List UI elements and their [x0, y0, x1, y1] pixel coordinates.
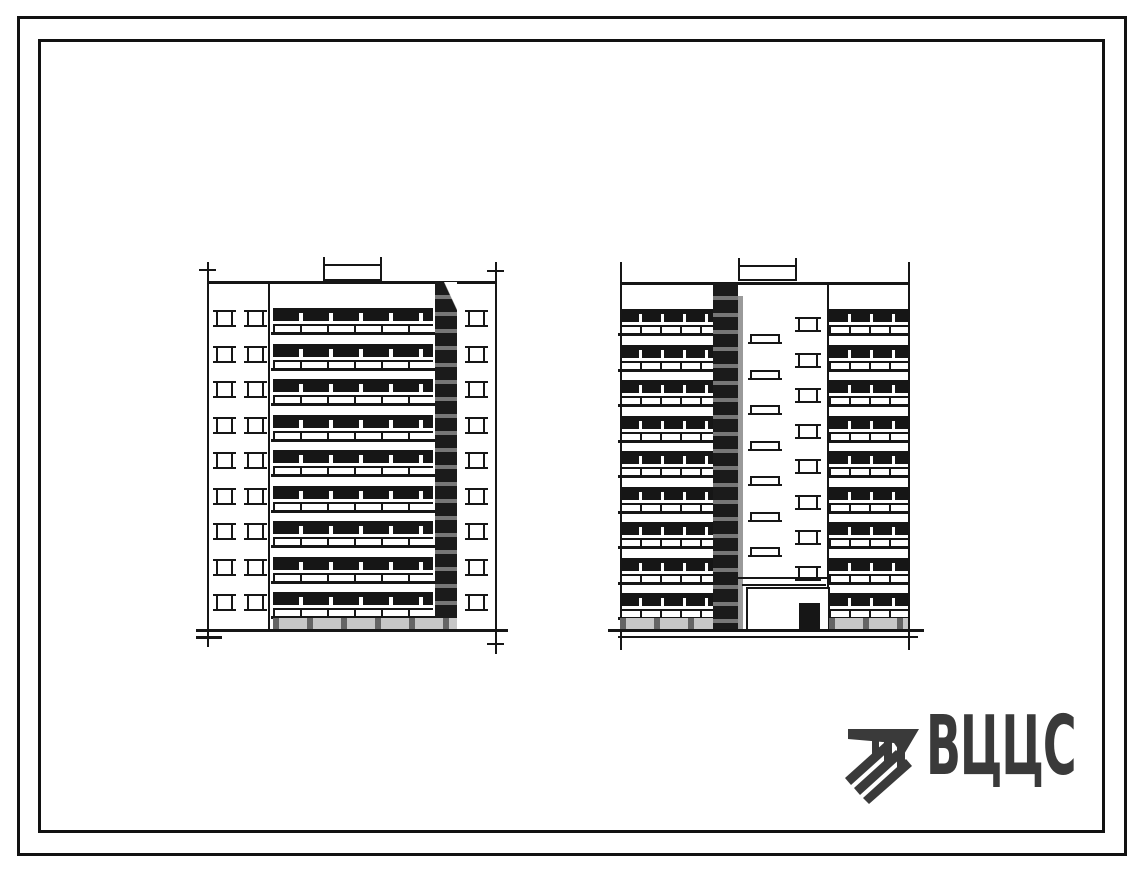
balcony-glazing — [829, 558, 908, 571]
balcony-glazing — [829, 451, 908, 464]
entrance-porch — [746, 587, 830, 632]
balcony-slab-line — [618, 546, 715, 549]
balcony-band — [829, 309, 908, 336]
stair-landing-window — [750, 476, 780, 486]
stair-landing-window — [750, 547, 780, 557]
balcony-glazing — [273, 379, 433, 392]
stair-landing-window — [750, 370, 780, 380]
balcony-slab-line — [271, 474, 435, 477]
balcony-slab-line — [271, 439, 435, 442]
elevator-penthouse — [738, 265, 797, 281]
stairwell-glazing-strip — [435, 282, 457, 630]
balcony-band — [620, 522, 713, 549]
window — [468, 417, 485, 434]
stairwell-glazing-strip — [713, 283, 738, 630]
logo-wordmark: ВЦЦС — [926, 706, 1075, 788]
ground-line-stub — [196, 636, 222, 639]
window — [247, 417, 264, 434]
basement-strip — [829, 618, 908, 629]
balcony-glazing — [273, 344, 433, 357]
balcony-glazing — [620, 380, 713, 393]
balcony-band — [273, 521, 433, 548]
balcony-band — [829, 593, 908, 620]
balcony-slab-line — [271, 545, 435, 548]
balcony-band — [273, 415, 433, 442]
window — [247, 488, 264, 505]
balcony-slab-line — [271, 368, 435, 371]
window — [468, 310, 485, 327]
sheet: ВЦЦС — [0, 0, 1139, 869]
entrance-door — [799, 603, 820, 630]
balcony-slab-line — [827, 582, 910, 585]
balcony-glazing — [620, 558, 713, 571]
window — [468, 559, 485, 576]
window — [216, 417, 233, 434]
window — [247, 346, 264, 363]
stair-landing-window — [750, 334, 780, 344]
stair-landing-window — [750, 441, 780, 451]
balcony-band — [829, 558, 908, 585]
balcony-stack — [620, 309, 713, 629]
balcony-glazing — [829, 487, 908, 500]
balcony-glazing — [829, 309, 908, 322]
balcony-glazing — [273, 450, 433, 463]
window — [468, 346, 485, 363]
balcony-glazing — [620, 416, 713, 429]
roof-parapet-line — [620, 282, 910, 285]
balcony-band — [273, 344, 433, 371]
facade-edge-line — [908, 262, 910, 650]
window — [216, 523, 233, 540]
balcony-band — [273, 450, 433, 477]
balcony-band — [273, 486, 433, 513]
window — [247, 310, 264, 327]
balcony-glazing — [273, 557, 433, 570]
entrance-canopy — [738, 577, 830, 579]
balcony-glazing — [620, 345, 713, 358]
ground-line — [196, 629, 508, 632]
balcony-band — [620, 380, 713, 407]
balcony-glazing — [620, 487, 713, 500]
balcony-slab-line — [618, 333, 715, 336]
balcony-slab-line — [827, 511, 910, 514]
balcony-glazing — [273, 592, 433, 605]
stair-landing-window-column — [750, 334, 780, 583]
balcony-band — [620, 593, 713, 620]
balcony-slab-line — [618, 369, 715, 372]
entrance-canopy-line — [742, 584, 826, 586]
balcony-slab-line — [271, 510, 435, 513]
balcony-band — [829, 345, 908, 372]
basement-strip — [620, 618, 713, 629]
balcony-slab-line — [618, 404, 715, 407]
balcony-glazing — [620, 309, 713, 322]
window — [247, 594, 264, 611]
balcony-band — [829, 522, 908, 549]
balcony-glazing — [829, 416, 908, 429]
window — [216, 488, 233, 505]
balcony-slab-line — [618, 475, 715, 478]
balcony-glazing — [273, 521, 433, 534]
balcony-band — [620, 345, 713, 372]
balcony-slab-line — [618, 511, 715, 514]
basement-strip — [273, 618, 457, 629]
balcony-band — [273, 592, 433, 619]
balcony-slab-line — [618, 440, 715, 443]
balcony-band — [620, 487, 713, 514]
core-window-column — [798, 317, 818, 601]
dimension-tick — [199, 269, 216, 271]
window — [216, 346, 233, 363]
window — [247, 381, 264, 398]
balcony-slab-line — [827, 440, 910, 443]
balcony-glazing — [620, 451, 713, 464]
balcony-glazing — [273, 308, 433, 321]
window — [468, 488, 485, 505]
balcony-glazing — [620, 593, 713, 606]
ground-line-secondary — [618, 636, 918, 638]
facade-edge-line — [207, 262, 209, 647]
balcony-band — [620, 558, 713, 585]
balcony-slab-line — [271, 581, 435, 584]
balcony-glazing — [620, 522, 713, 535]
window-column — [216, 310, 233, 630]
window — [216, 594, 233, 611]
balcony-band — [620, 309, 713, 336]
window — [798, 530, 818, 545]
balcony-slab-line — [827, 546, 910, 549]
balcony-band — [273, 379, 433, 406]
window — [216, 452, 233, 469]
window — [468, 523, 485, 540]
dimension-tick — [487, 270, 504, 272]
window — [798, 495, 818, 510]
window — [798, 388, 818, 403]
facade-section-divider — [268, 281, 270, 630]
balcony-band — [273, 308, 433, 335]
window — [247, 452, 264, 469]
window — [468, 381, 485, 398]
balcony-glazing — [829, 380, 908, 393]
dimension-tick — [487, 643, 504, 645]
window — [798, 317, 818, 332]
window — [798, 424, 818, 439]
logo-mark-icon — [843, 720, 925, 804]
balcony-glazing — [829, 345, 908, 358]
window-column — [468, 310, 485, 630]
balcony-slab-line — [827, 333, 910, 336]
window — [216, 381, 233, 398]
balcony-stack — [829, 309, 908, 629]
stairwell-shading-edge — [738, 296, 743, 630]
balcony-glazing — [829, 593, 908, 606]
window — [798, 353, 818, 368]
balcony-band — [273, 557, 433, 584]
balcony-band — [620, 451, 713, 478]
window — [798, 459, 818, 474]
balcony-slab-line — [827, 404, 910, 407]
balcony-stack — [273, 308, 433, 628]
balcony-band — [829, 380, 908, 407]
balcony-glazing — [273, 486, 433, 499]
stair-landing-window — [750, 512, 780, 522]
left-building-elevation — [196, 262, 508, 662]
balcony-glazing — [829, 522, 908, 535]
window — [247, 523, 264, 540]
balcony-slab-line — [827, 369, 910, 372]
facade-edge-line — [495, 262, 497, 654]
balcony-slab-line — [618, 582, 715, 585]
balcony-slab-line — [271, 332, 435, 335]
window — [468, 452, 485, 469]
balcony-band — [829, 451, 908, 478]
right-building-elevation — [608, 262, 924, 662]
balcony-slab-line — [271, 403, 435, 406]
window — [468, 594, 485, 611]
balcony-slab-line — [827, 475, 910, 478]
stair-landing-window — [750, 405, 780, 415]
window — [216, 559, 233, 576]
ground-line — [608, 629, 924, 632]
window-column — [247, 310, 264, 630]
balcony-band — [620, 416, 713, 443]
balcony-band — [829, 487, 908, 514]
window — [216, 310, 233, 327]
window — [247, 559, 264, 576]
balcony-glazing — [273, 415, 433, 428]
vccs-logo: ВЦЦС — [843, 706, 1083, 806]
balcony-band — [829, 416, 908, 443]
elevator-penthouse — [323, 264, 382, 281]
